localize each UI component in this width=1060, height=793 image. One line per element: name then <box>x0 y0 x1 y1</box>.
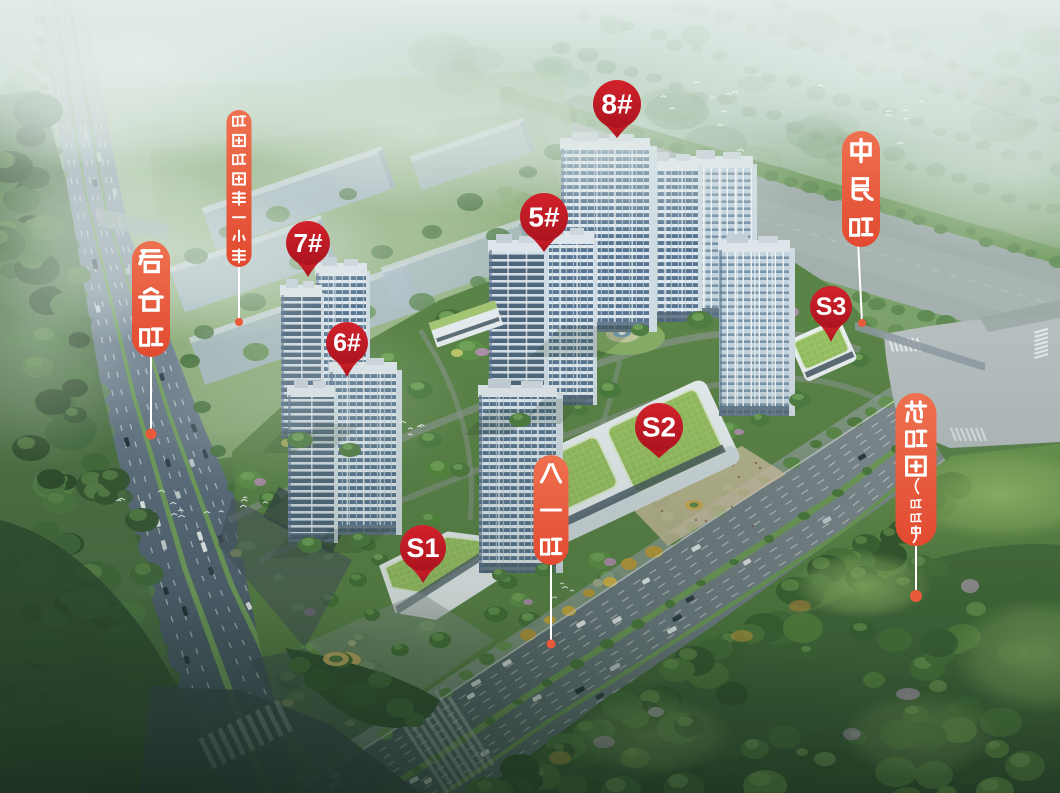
svg-text:8#: 8# <box>601 89 633 120</box>
svg-text:6#: 6# <box>333 329 361 357</box>
svg-text:7#: 7# <box>294 228 323 258</box>
svg-text:5#: 5# <box>528 202 560 233</box>
svg-text:S2: S2 <box>642 412 676 443</box>
svg-text:S3: S3 <box>816 293 847 321</box>
svg-text:S1: S1 <box>406 533 439 563</box>
